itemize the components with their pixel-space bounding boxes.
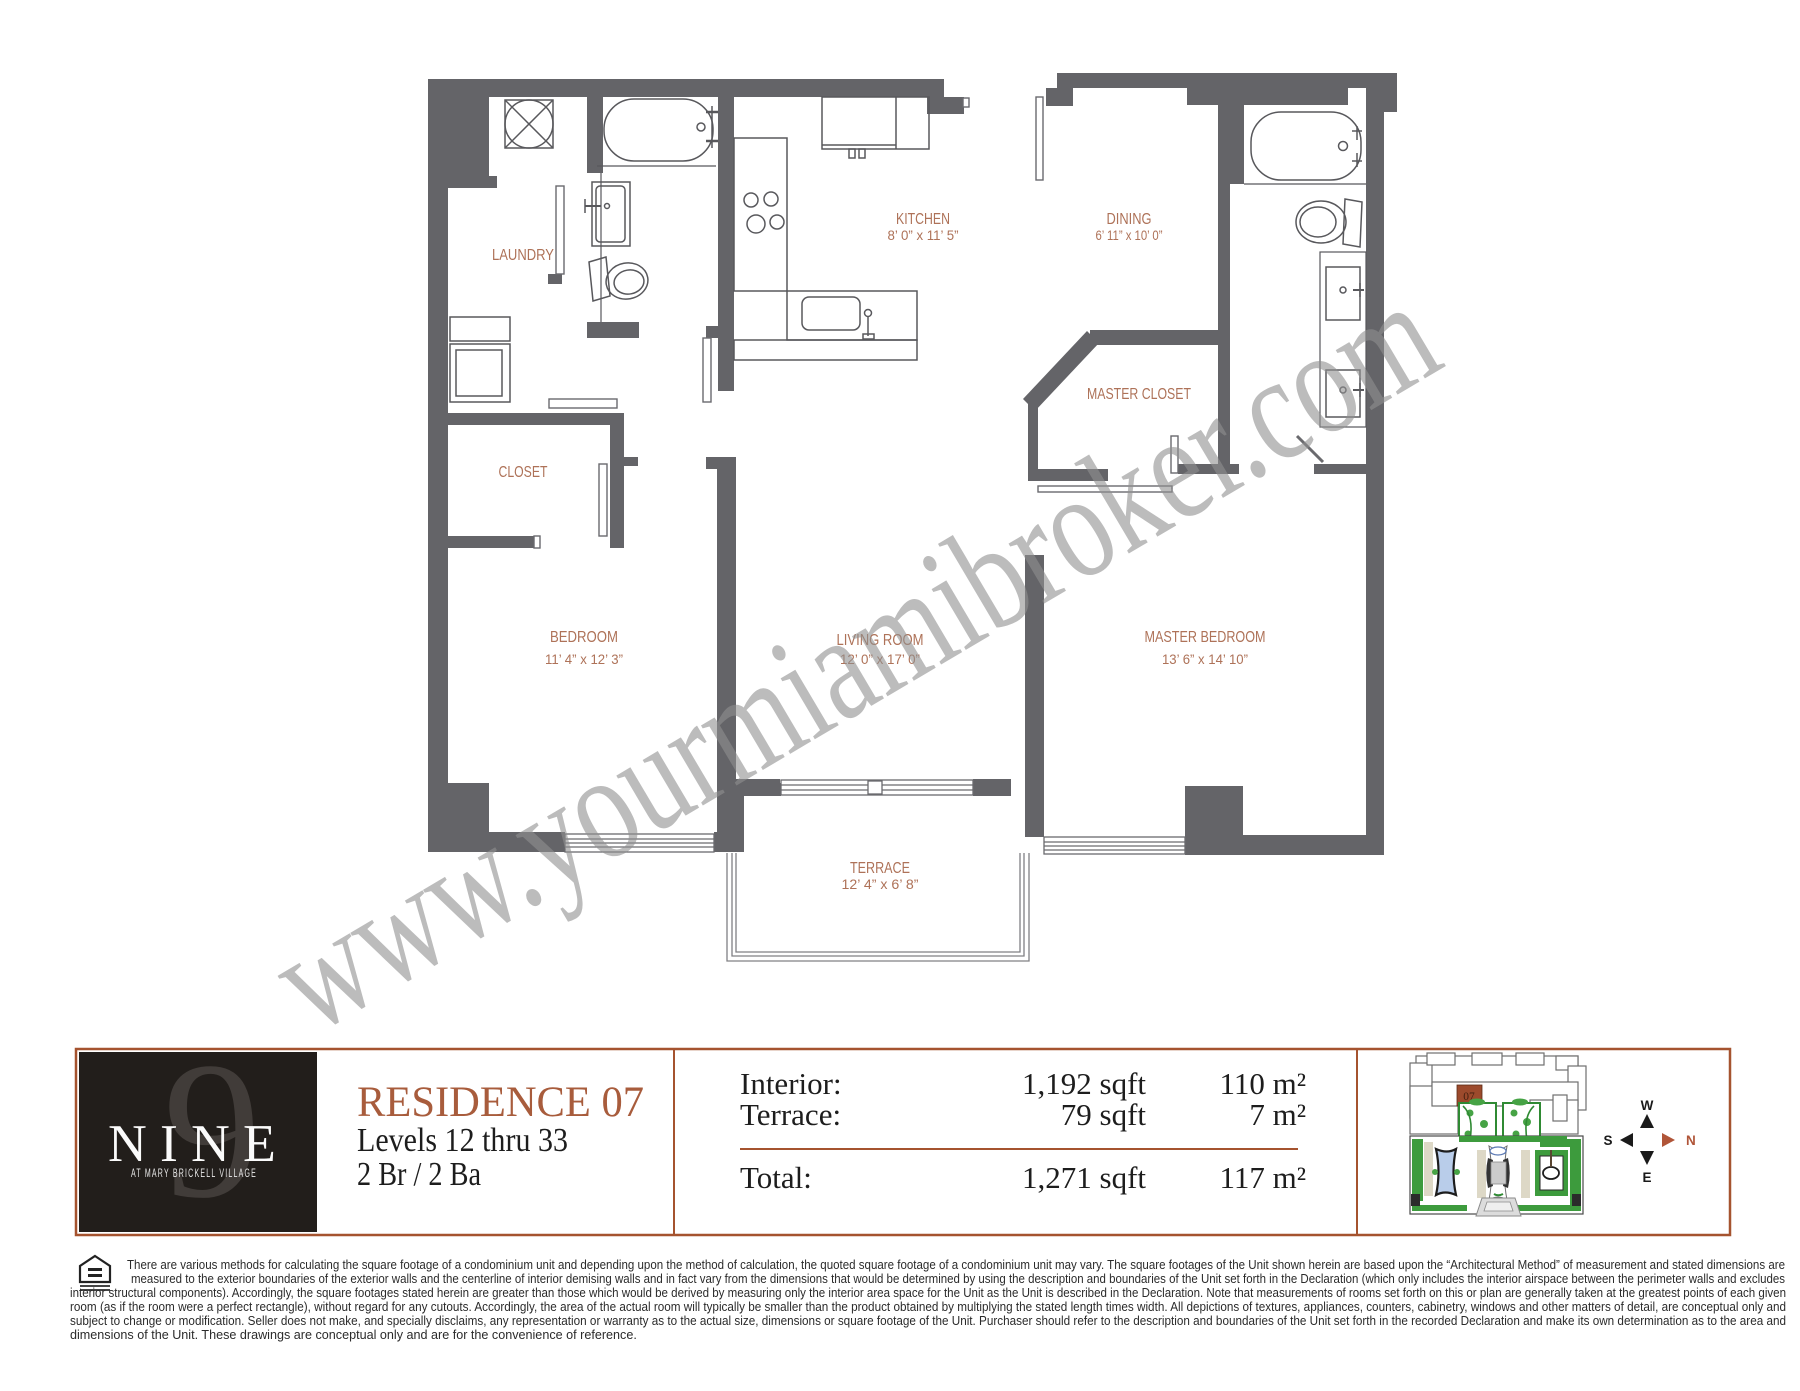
- svg-text:subject to change or modificat: subject to change or modification. Selle…: [70, 1314, 1786, 1328]
- svg-text:RESIDENCE 07: RESIDENCE 07: [357, 1079, 644, 1126]
- svg-text:MASTER BEDROOM: MASTER BEDROOM: [1145, 629, 1266, 646]
- svg-text:CLOSET: CLOSET: [499, 464, 548, 481]
- svg-text:1,192 sqft: 1,192 sqft: [1022, 1066, 1146, 1101]
- svg-text:N: N: [1686, 1133, 1696, 1148]
- svg-text:AT MARY BRICKELL VILLAGE: AT MARY BRICKELL VILLAGE: [131, 1168, 257, 1180]
- svg-text:LAUNDRY: LAUNDRY: [492, 247, 554, 264]
- svg-text:110 m²: 110 m²: [1219, 1066, 1306, 1101]
- svg-text:6’ 11” x 10’ 0”: 6’ 11” x 10’ 0”: [1096, 227, 1163, 243]
- svg-text:2 Br / 2 Ba: 2 Br / 2 Ba: [357, 1156, 481, 1193]
- svg-text:DINING: DINING: [1107, 211, 1152, 228]
- svg-text:BEDROOM: BEDROOM: [550, 629, 618, 646]
- svg-text:Levels 12 thru 33: Levels 12 thru 33: [357, 1122, 568, 1159]
- svg-text:TERRACE: TERRACE: [850, 860, 910, 877]
- svg-text:NINE: NINE: [108, 1115, 289, 1173]
- svg-text:dimensions of the Unit. These: dimensions of the Unit. These drawings a…: [70, 1328, 637, 1342]
- svg-text:Interior:: Interior:: [740, 1066, 842, 1101]
- svg-text:interior structural components: interior structural components). Accordi…: [70, 1286, 1786, 1300]
- svg-text:room (as if the room were a pe: room (as if the room were a perfect rect…: [70, 1300, 1786, 1314]
- svg-text:1,271 sqft: 1,271 sqft: [1022, 1160, 1146, 1195]
- svg-text:Terrace:: Terrace:: [740, 1097, 841, 1132]
- svg-text:8’ 0” x 11’ 5”: 8’ 0” x 11’ 5”: [888, 227, 959, 243]
- svg-text:7 m²: 7 m²: [1249, 1097, 1306, 1132]
- svg-text:measured to the exterior bound: measured to the exterior boundaries of t…: [131, 1272, 1785, 1286]
- svg-text:There are various methods for: There are various methods for calculatin…: [127, 1258, 1785, 1272]
- svg-text:79 sqft: 79 sqft: [1061, 1097, 1147, 1132]
- svg-text:11’ 4” x 12’ 3”: 11’ 4” x 12’ 3”: [545, 651, 623, 667]
- svg-text:E: E: [1642, 1170, 1651, 1185]
- svg-text:KITCHEN: KITCHEN: [896, 211, 950, 228]
- svg-text:12’ 4” x 6’ 8”: 12’ 4” x 6’ 8”: [842, 876, 919, 892]
- svg-text:117 m²: 117 m²: [1219, 1160, 1306, 1195]
- svg-text:W: W: [1641, 1098, 1654, 1113]
- svg-text:Total:: Total:: [740, 1160, 812, 1195]
- svg-text:S: S: [1603, 1133, 1612, 1148]
- svg-text:13’ 6” x 14’ 10”: 13’ 6” x 14’ 10”: [1162, 651, 1248, 667]
